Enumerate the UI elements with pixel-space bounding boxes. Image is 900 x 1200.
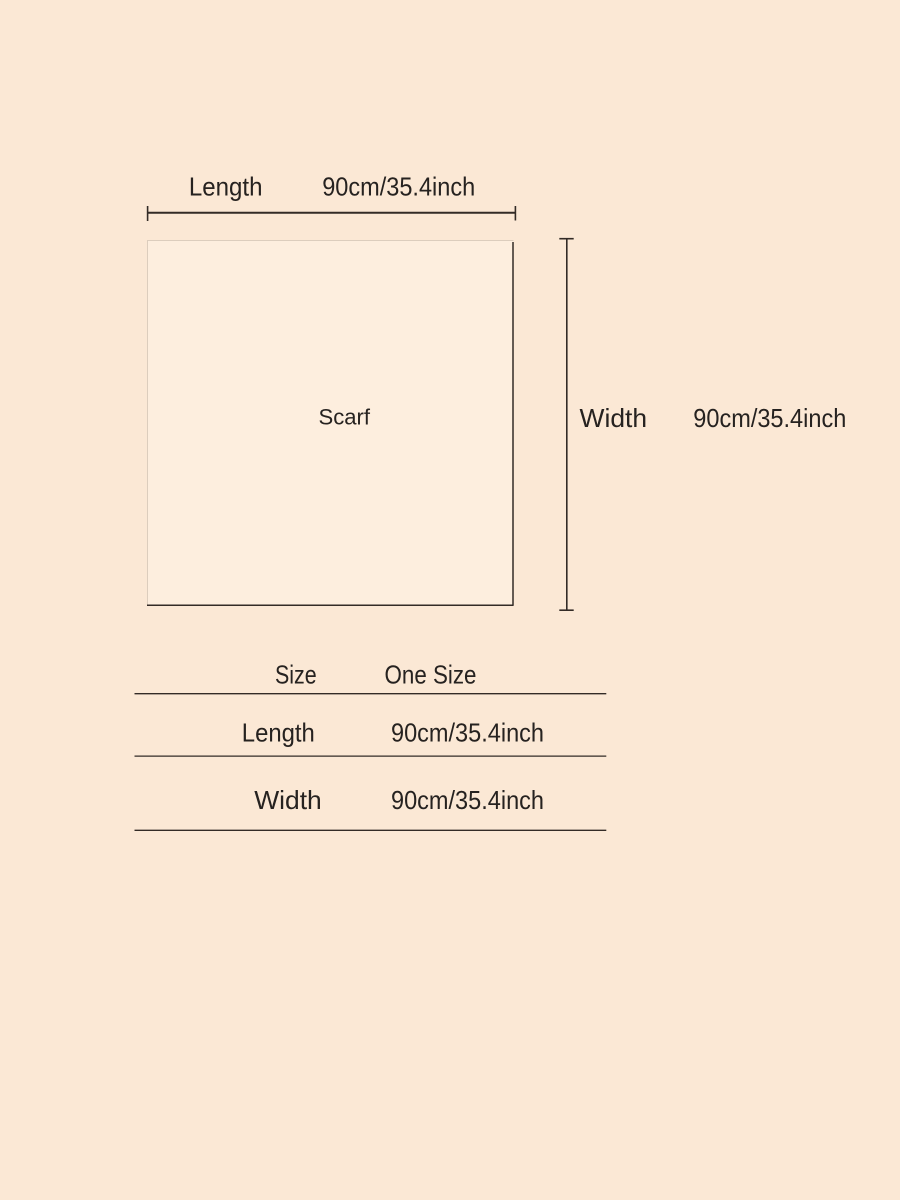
svg-text:90cm/35.4inch: 90cm/35.4inch <box>322 172 475 202</box>
svg-text:Scarf: Scarf <box>319 405 371 430</box>
svg-text:One Size: One Size <box>385 659 477 689</box>
svg-text:90cm/35.4inch: 90cm/35.4inch <box>693 403 846 433</box>
svg-text:Size: Size <box>275 659 317 689</box>
svg-text:Width: Width <box>580 403 648 433</box>
svg-text:Width: Width <box>254 785 322 815</box>
svg-text:90cm/35.4inch: 90cm/35.4inch <box>391 785 544 815</box>
svg-text:90cm/35.4inch: 90cm/35.4inch <box>391 718 544 748</box>
svg-text:Length: Length <box>242 718 315 748</box>
svg-text:Length: Length <box>189 172 263 202</box>
